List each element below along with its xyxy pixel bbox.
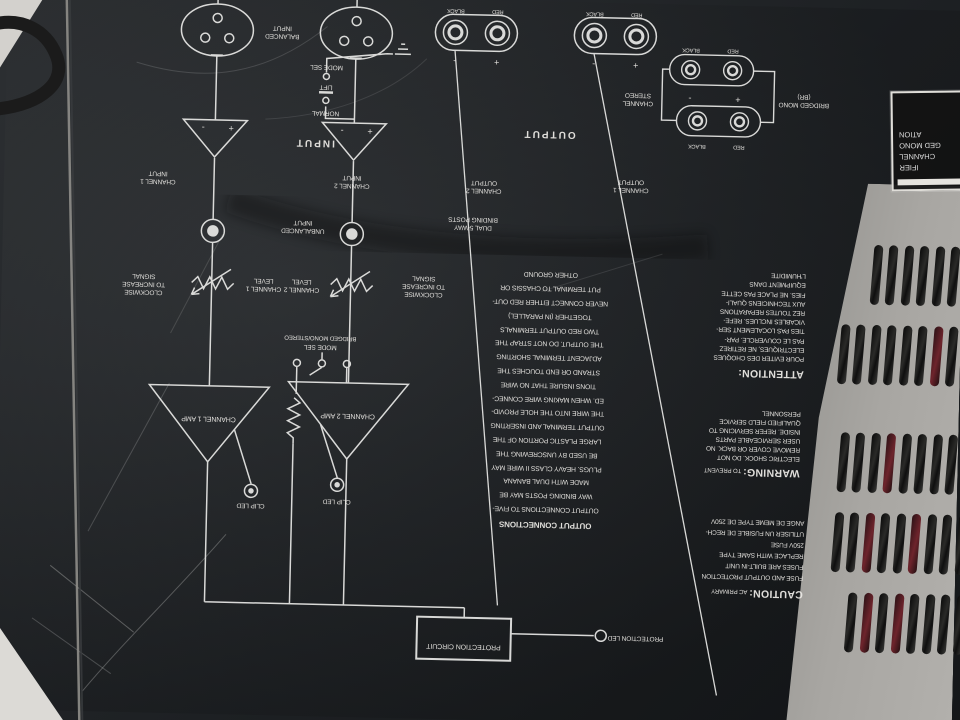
photo-amp-top-panel: BALANCED INPUT MODE SEL LIFT NORMAL INPU… (0, 0, 960, 720)
upside-down-scene: BALANCED INPUT MODE SEL LIFT NORMAL INPU… (0, 0, 960, 720)
panel-edge (0, 0, 960, 720)
power-cable (0, 22, 60, 110)
